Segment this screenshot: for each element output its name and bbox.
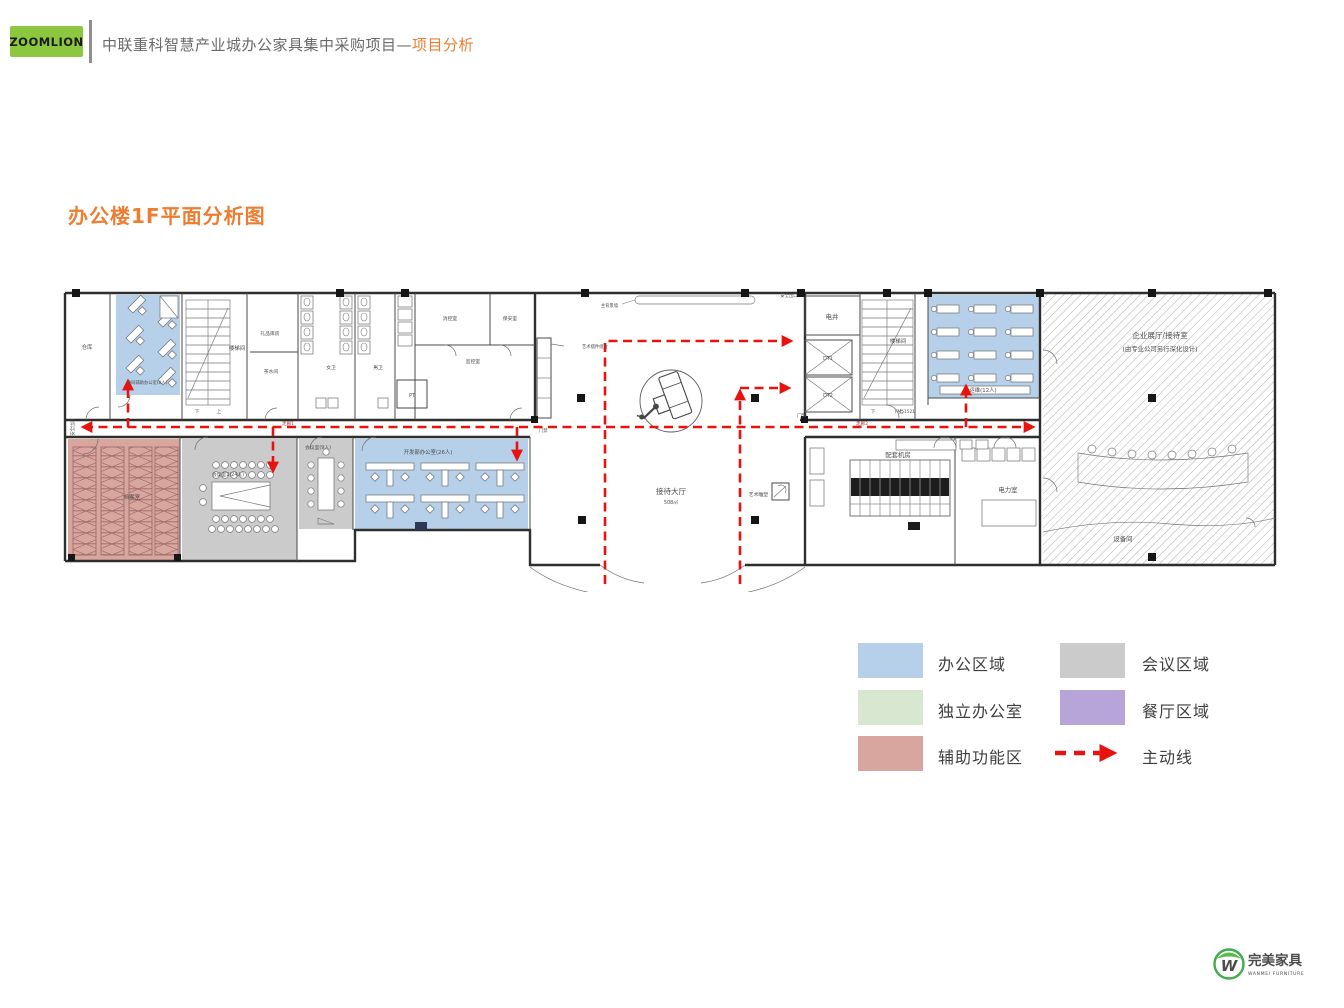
label-door-access: 门禁: [797, 412, 807, 419]
room-label-ops-office: 运维(12人): [969, 386, 996, 394]
floor-plan-svg: 仓库 协同辅助办公室(8人) 楼梯间 礼品库房 茶水间 女卫 男卫 PT 消控室…: [60, 280, 1282, 592]
legend-swatch-independent: [858, 690, 923, 725]
room-label-archive: 档案室: [124, 493, 141, 501]
room-label-pantry: 茶水间: [264, 368, 279, 375]
label-dt2: DT2: [823, 393, 833, 399]
label-corridor-1: 走廊1: [282, 420, 294, 427]
label-stair-up-right: 上: [899, 408, 904, 415]
label-reception-area: 508㎡: [664, 499, 678, 506]
room-label-fire-control: 消控室: [443, 315, 458, 322]
wanmei-furniture-logo: W 完美家具 WANMEI FURNITURE: [1208, 938, 1338, 993]
label-door-access-2: 门禁: [539, 427, 548, 434]
room-label-meeting9: 会议室(9人): [305, 444, 331, 451]
header-title: 中联重科智慧产业城办公家具集中采购项目—项目分析: [102, 34, 474, 55]
legend-label-independent: 独立办公室: [938, 698, 1023, 722]
room-label-collab-office: 协同辅助办公室(8人): [127, 379, 168, 386]
label-safety-exit-top: 安全出口: [780, 292, 797, 299]
header-title-accent: 项目分析: [412, 36, 474, 54]
label-safety-exit-left: 安全出口: [69, 418, 76, 435]
label-art-display: 艺术摆件组合: [582, 343, 608, 350]
legend-route-arrow: [1052, 744, 1132, 766]
room-label-men-wc: 男卫: [373, 365, 383, 371]
machine-room-equipment: [810, 440, 1036, 530]
brand-subtitle: WANMEI FURNITURE: [1248, 971, 1304, 977]
label-dt1: DT1: [823, 356, 833, 362]
room-label-monitor: 监控室: [466, 358, 481, 365]
legend-swatch-auxiliary: [858, 736, 923, 771]
header-divider: [89, 20, 92, 63]
room-label-stair-right: 楼梯间: [890, 337, 906, 345]
label-stair-down-right: 下: [871, 409, 876, 415]
room-label-exhibition-1: 企业展厅/接待室: [1132, 330, 1188, 340]
room-label-dev-office: 开发部办公室(26人): [404, 448, 453, 456]
legend-label-auxiliary: 辅助功能区: [938, 744, 1023, 768]
legend-label-meeting: 会议区域: [1142, 651, 1210, 675]
legend-swatch-office: [858, 643, 923, 678]
room-label-reception: 接待大厅: [656, 486, 687, 496]
header-title-main: 中联重科智慧产业城办公家具集中采购项目—: [102, 36, 412, 54]
room-label-gift-store: 礼品库房: [260, 330, 279, 337]
label-corridor-2: 走廊2: [856, 420, 868, 427]
legend-swatch-meeting: [1060, 643, 1125, 678]
room-label-exhibition-2: (由专业公司另行深化设计): [1122, 344, 1197, 353]
label-stair-up-left: 上: [217, 408, 222, 415]
room-label-warehouse: 仓库: [82, 343, 93, 351]
logo-monogram: W: [1221, 957, 1239, 975]
room-label-equipment: 设备间: [1113, 534, 1132, 543]
zoomlion-logo-text: ZOOMLION: [9, 35, 83, 49]
page-title: 办公楼1F平面分析图: [68, 200, 266, 229]
legend-label-office: 办公区域: [938, 651, 1006, 675]
room-label-elec-shaft: 电井: [826, 312, 839, 321]
brand-name: 完美家具: [1248, 952, 1302, 969]
room-label-security: 保安室: [503, 315, 518, 322]
room-label-machine-room: 配套机房: [885, 450, 911, 459]
legend-label-route: 主动线: [1142, 744, 1193, 768]
room-label-women-wc: 女卫: [326, 364, 336, 371]
legend-swatch-dining: [1060, 690, 1125, 725]
label-main-backdrop: 主背景墙: [601, 302, 619, 309]
zoomlion-logo: ZOOMLION: [10, 26, 83, 57]
wc-fixtures: [301, 296, 427, 408]
room-label-stair-left: 楼梯间: [229, 344, 245, 352]
label-stair-down-left: 下: [195, 409, 200, 415]
room-label-meeting24: 会议室2(24人): [212, 471, 244, 478]
room-label-power-room: 电力室: [998, 485, 1018, 494]
crane-sketch: [627, 370, 702, 432]
room-label-pt: PT: [409, 393, 415, 399]
slide: ZOOMLION 中联重科智慧产业城办公家具集中采购项目—项目分析 办公楼1F平…: [0, 0, 1344, 1008]
label-art-sculpture: 艺术雕塑: [749, 491, 768, 498]
floor-plan: 仓库 协同辅助办公室(8人) 楼梯间 礼品库房 茶水间 女卫 男卫 PT 消控室…: [60, 280, 1282, 592]
legend-label-dining: 餐厅区域: [1142, 698, 1210, 722]
